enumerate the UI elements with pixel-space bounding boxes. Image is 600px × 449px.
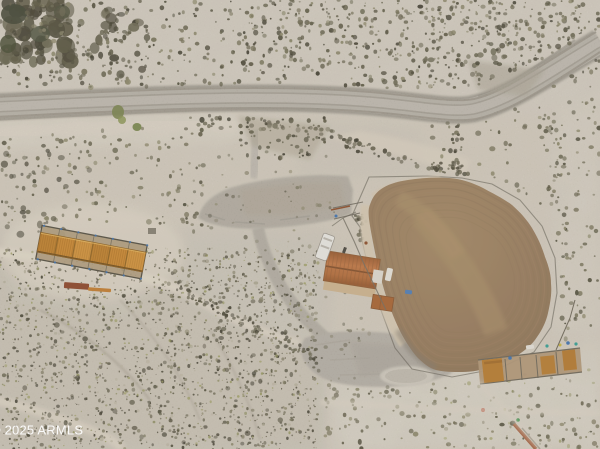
- svg-text:© 2025 ARMLS: © 2025 ARMLS: [0, 423, 83, 438]
